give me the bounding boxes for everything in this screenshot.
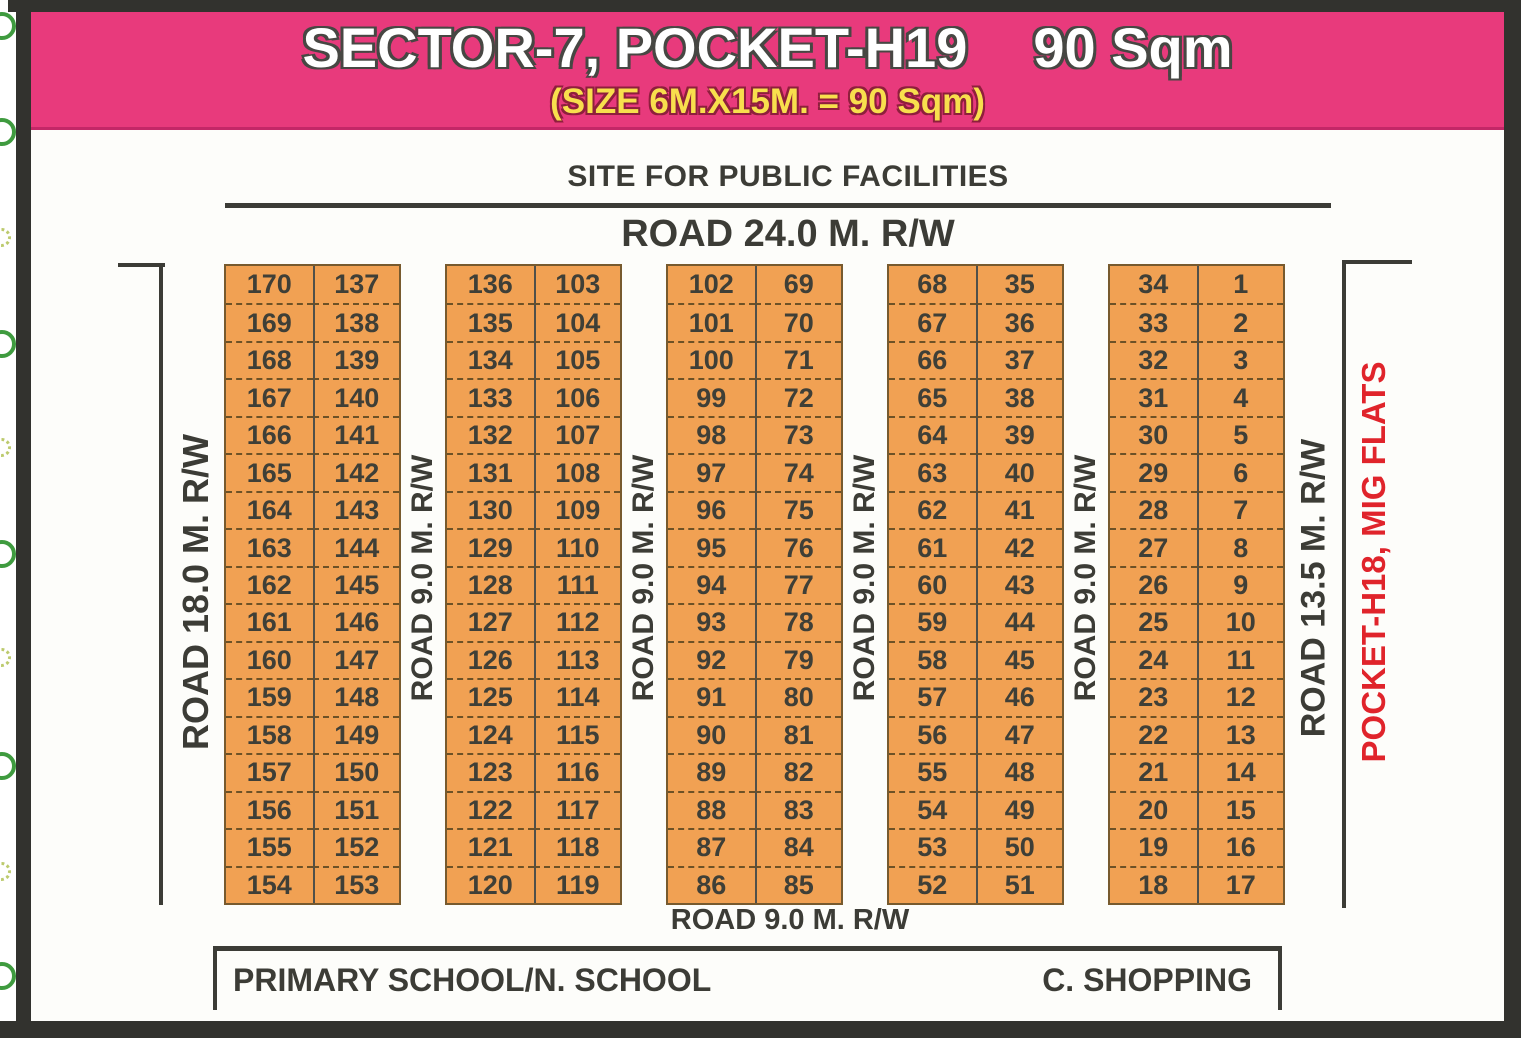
plot-cell: 58 (889, 641, 976, 678)
plot-cell: 61 (889, 528, 976, 565)
plot-cell: 17 (1197, 866, 1284, 903)
plot-cell: 42 (976, 528, 1063, 565)
plot-cell: 82 (755, 753, 842, 790)
plot-cell: 8 (1197, 528, 1284, 565)
plot-cell: 108 (534, 453, 621, 490)
plot-cell: 95 (668, 528, 755, 565)
plot-cell: 140 (313, 378, 400, 415)
binding-hole-icon (0, 752, 16, 780)
plot-cell: 124 (447, 716, 534, 753)
plot-cell: 166 (226, 416, 313, 453)
plot-cell: 141 (313, 416, 400, 453)
plot-cell: 92 (668, 641, 755, 678)
plot-cell: 125 (447, 678, 534, 715)
page-border (8, 0, 1521, 12)
plot-cell: 50 (976, 828, 1063, 865)
road-9m-label: ROAD 9.0 M. R/W (627, 455, 661, 702)
plot-cell: 18 (1110, 866, 1197, 903)
plot-cell: 39 (976, 416, 1063, 453)
plot-cell: 47 (976, 716, 1063, 753)
plot-cell: 9 (1197, 566, 1284, 603)
plot-cell: 146 (313, 603, 400, 640)
plot-cell: 7 (1197, 491, 1284, 528)
plot-cell: 5 (1197, 416, 1284, 453)
plot-cell: 161 (226, 603, 313, 640)
plot-cell: 44 (976, 603, 1063, 640)
plot-cell: 29 (1110, 453, 1197, 490)
plot-cell: 121 (447, 828, 534, 865)
plot-cell: 110 (534, 528, 621, 565)
plot-block-2: 1361031351041341051331061321071311081301… (445, 264, 622, 905)
plot-cell: 109 (534, 491, 621, 528)
plot-cell: 127 (447, 603, 534, 640)
plot-cell: 122 (447, 791, 534, 828)
plot-cell: 105 (534, 341, 621, 378)
plot-cell: 70 (755, 303, 842, 340)
plot-cell: 40 (976, 453, 1063, 490)
plot-cell: 87 (668, 828, 755, 865)
binding-hole-icon (0, 12, 16, 40)
plot-cell: 71 (755, 341, 842, 378)
plot-cell: 80 (755, 678, 842, 715)
plot-cell: 6 (1197, 453, 1284, 490)
plot-cell: 160 (226, 641, 313, 678)
plot-cell: 43 (976, 566, 1063, 603)
plot-cell: 59 (889, 603, 976, 640)
plot-cell: 56 (889, 716, 976, 753)
plot-cell: 10 (1197, 603, 1284, 640)
plot-cell: 111 (534, 566, 621, 603)
plot-cell: 52 (889, 866, 976, 903)
plot-cell: 155 (226, 828, 313, 865)
plot-cell: 81 (755, 716, 842, 753)
page-border (1504, 0, 1521, 1038)
area-label: 90 Sqm (1033, 16, 1232, 79)
plot-cell: 165 (226, 453, 313, 490)
plot-cell: 14 (1197, 753, 1284, 790)
plot-cell: 46 (976, 678, 1063, 715)
plot-cell: 120 (447, 866, 534, 903)
plot-cell: 163 (226, 528, 313, 565)
plot-cell: 51 (976, 866, 1063, 903)
binding-hole-icon (0, 962, 16, 990)
plot-cell: 113 (534, 641, 621, 678)
plot-cell: 150 (313, 753, 400, 790)
plot-cell: 149 (313, 716, 400, 753)
plot-cell: 12 (1197, 678, 1284, 715)
title-banner: SECTOR-7, POCKET-H1990 Sqm (SIZE 6M.X15M… (31, 10, 1504, 130)
plot-cell: 15 (1197, 791, 1284, 828)
plot-cell: 96 (668, 491, 755, 528)
plot-cell: 153 (313, 866, 400, 903)
plot-cell: 27 (1110, 528, 1197, 565)
plot-cell: 30 (1110, 416, 1197, 453)
road-9m-label: ROAD 9.0 M. R/W (1069, 455, 1103, 702)
plot-cell: 154 (226, 866, 313, 903)
plot-cell: 84 (755, 828, 842, 865)
plot-cell: 85 (755, 866, 842, 903)
binding-margin (0, 0, 16, 1038)
plot-cell: 48 (976, 753, 1063, 790)
plot-cell: 22 (1110, 716, 1197, 753)
plot-cell: 134 (447, 341, 534, 378)
road-9m-bottom-label: ROAD 9.0 M. R/W (671, 904, 909, 937)
page-title: SECTOR-7, POCKET-H1990 Sqm (302, 15, 1232, 80)
pocket-h18-mig-flats-label: POCKET-H18, MIG FLATS (1355, 362, 1393, 763)
plot-cell: 54 (889, 791, 976, 828)
plot-cell: 112 (534, 603, 621, 640)
plot-cell: 62 (889, 491, 976, 528)
binding-hole-icon (0, 438, 11, 457)
plot-cell: 67 (889, 303, 976, 340)
plot-block-3: 1026910170100719972987397749675957694779… (666, 264, 843, 905)
plot-cell: 64 (889, 416, 976, 453)
plot-cell: 94 (668, 566, 755, 603)
plot-block-1: 1701371691381681391671401661411651421641… (224, 264, 401, 905)
plot-cell: 16 (1197, 828, 1284, 865)
road-13-5m-label: ROAD 13.5 M. R/W (1295, 439, 1334, 737)
plot-cell: 55 (889, 753, 976, 790)
c-shopping-label: C. SHOPPING (1042, 962, 1252, 999)
plot-cell: 65 (889, 378, 976, 415)
road-9m-label: ROAD 9.0 M. R/W (848, 455, 882, 702)
plot-cell: 73 (755, 416, 842, 453)
plot-cell: 77 (755, 566, 842, 603)
plot-cell: 116 (534, 753, 621, 790)
plot-cell: 33 (1110, 303, 1197, 340)
plot-cell: 119 (534, 866, 621, 903)
plot-cell: 31 (1110, 378, 1197, 415)
plot-cell: 1 (1197, 266, 1284, 303)
plot-cell: 151 (313, 791, 400, 828)
road-24m-label: ROAD 24.0 M. R/W (621, 213, 955, 256)
plot-cell: 28 (1110, 491, 1197, 528)
plot-cell: 66 (889, 341, 976, 378)
plot-cell: 138 (313, 303, 400, 340)
plot-cell: 91 (668, 678, 755, 715)
plot-cell: 11 (1197, 641, 1284, 678)
plot-cell: 100 (668, 341, 755, 378)
binding-hole-icon (0, 228, 11, 247)
plot-cell: 90 (668, 716, 755, 753)
plot-cell: 89 (668, 753, 755, 790)
plot-cell: 99 (668, 378, 755, 415)
plot-cell: 106 (534, 378, 621, 415)
plot-cell: 93 (668, 603, 755, 640)
plot-cell: 107 (534, 416, 621, 453)
plot-block-5: 3413323233143052962872782692510241123122… (1108, 264, 1285, 905)
plot-cell: 156 (226, 791, 313, 828)
plot-cell: 159 (226, 678, 313, 715)
plot-cell: 26 (1110, 566, 1197, 603)
plot-cell: 167 (226, 378, 313, 415)
plot-size-subtitle: (SIZE 6M.X15M. = 90 Sqm) (550, 82, 985, 122)
plot-cell: 143 (313, 491, 400, 528)
plot-cell: 53 (889, 828, 976, 865)
plot-cell: 38 (976, 378, 1063, 415)
plot-cell: 103 (534, 266, 621, 303)
plot-cell: 79 (755, 641, 842, 678)
plot-cell: 168 (226, 341, 313, 378)
plot-cell: 72 (755, 378, 842, 415)
binding-hole-icon (0, 648, 11, 667)
plot-cell: 170 (226, 266, 313, 303)
plot-cell: 3 (1197, 341, 1284, 378)
plot-cell: 104 (534, 303, 621, 340)
public-facilities-label: SITE FOR PUBLIC FACILITIES (567, 160, 1008, 194)
binding-hole-icon (0, 330, 16, 358)
plot-cell: 76 (755, 528, 842, 565)
plot-cell: 157 (226, 753, 313, 790)
plot-cell: 123 (447, 753, 534, 790)
plot-cell: 114 (534, 678, 621, 715)
right-bracket-line (1342, 260, 1346, 908)
plot-cell: 136 (447, 266, 534, 303)
plot-cell: 49 (976, 791, 1063, 828)
plot-cell: 97 (668, 453, 755, 490)
plot-cell: 13 (1197, 716, 1284, 753)
plot-cell: 164 (226, 491, 313, 528)
plot-cell: 139 (313, 341, 400, 378)
plot-cell: 133 (447, 378, 534, 415)
plot-cell: 21 (1110, 753, 1197, 790)
plot-cell: 68 (889, 266, 976, 303)
plot-cell: 169 (226, 303, 313, 340)
plot-cell: 4 (1197, 378, 1284, 415)
binding-hole-icon (0, 862, 11, 881)
plot-cell: 98 (668, 416, 755, 453)
plot-cell: 101 (668, 303, 755, 340)
plot-cell: 75 (755, 491, 842, 528)
plot-cell: 60 (889, 566, 976, 603)
plot-cell: 45 (976, 641, 1063, 678)
plot-cell: 57 (889, 678, 976, 715)
plot-cell: 34 (1110, 266, 1197, 303)
left-bracket-line (159, 263, 163, 905)
plot-cell: 19 (1110, 828, 1197, 865)
plot-cell: 102 (668, 266, 755, 303)
binding-hole-icon (0, 118, 16, 146)
plot-cell: 135 (447, 303, 534, 340)
plot-cell: 152 (313, 828, 400, 865)
plot-cell: 86 (668, 866, 755, 903)
plot-cell: 144 (313, 528, 400, 565)
plot-cell: 128 (447, 566, 534, 603)
left-bracket-line (118, 263, 165, 267)
binding-hole-icon (0, 540, 16, 568)
plot-cell: 24 (1110, 641, 1197, 678)
plot-cell: 83 (755, 791, 842, 828)
right-bracket-line (1342, 260, 1412, 264)
page-border (16, 0, 31, 1038)
primary-school-label: PRIMARY SCHOOL/N. SCHOOL (233, 962, 711, 999)
plot-cell: 145 (313, 566, 400, 603)
plot-cell: 126 (447, 641, 534, 678)
plot-cell: 158 (226, 716, 313, 753)
plot-cell: 130 (447, 491, 534, 528)
plot-cell: 88 (668, 791, 755, 828)
plot-cell: 129 (447, 528, 534, 565)
plot-cell: 117 (534, 791, 621, 828)
plot-cell: 32 (1110, 341, 1197, 378)
plot-cell: 63 (889, 453, 976, 490)
plot-cell: 35 (976, 266, 1063, 303)
plot-cell: 20 (1110, 791, 1197, 828)
site-plan-page: SECTOR-7, POCKET-H1990 Sqm (SIZE 6M.X15M… (0, 0, 1521, 1038)
sector-pocket-label: SECTOR-7, POCKET-H19 (302, 16, 967, 79)
road-9m-label: ROAD 9.0 M. R/W (406, 455, 440, 702)
facility-box: PRIMARY SCHOOL/N. SCHOOL C. SHOPPING (213, 946, 1282, 1010)
plot-block-4: 6835673666376538643963406241614260435944… (887, 264, 1064, 905)
plot-cell: 78 (755, 603, 842, 640)
plot-cell: 162 (226, 566, 313, 603)
plot-cell: 131 (447, 453, 534, 490)
road-18m-label: ROAD 18.0 M. R/W (175, 434, 217, 750)
plot-cell: 115 (534, 716, 621, 753)
plot-cell: 41 (976, 491, 1063, 528)
plot-cell: 148 (313, 678, 400, 715)
plot-cell: 69 (755, 266, 842, 303)
plot-cell: 118 (534, 828, 621, 865)
plot-cell: 2 (1197, 303, 1284, 340)
plot-cell: 25 (1110, 603, 1197, 640)
plot-cell: 74 (755, 453, 842, 490)
plot-cell: 36 (976, 303, 1063, 340)
plot-cell: 142 (313, 453, 400, 490)
plot-cell: 137 (313, 266, 400, 303)
plot-cell: 37 (976, 341, 1063, 378)
page-border (0, 1021, 1521, 1038)
plot-cell: 23 (1110, 678, 1197, 715)
boundary-line (225, 203, 1331, 208)
plot-cell: 147 (313, 641, 400, 678)
plot-cell: 132 (447, 416, 534, 453)
